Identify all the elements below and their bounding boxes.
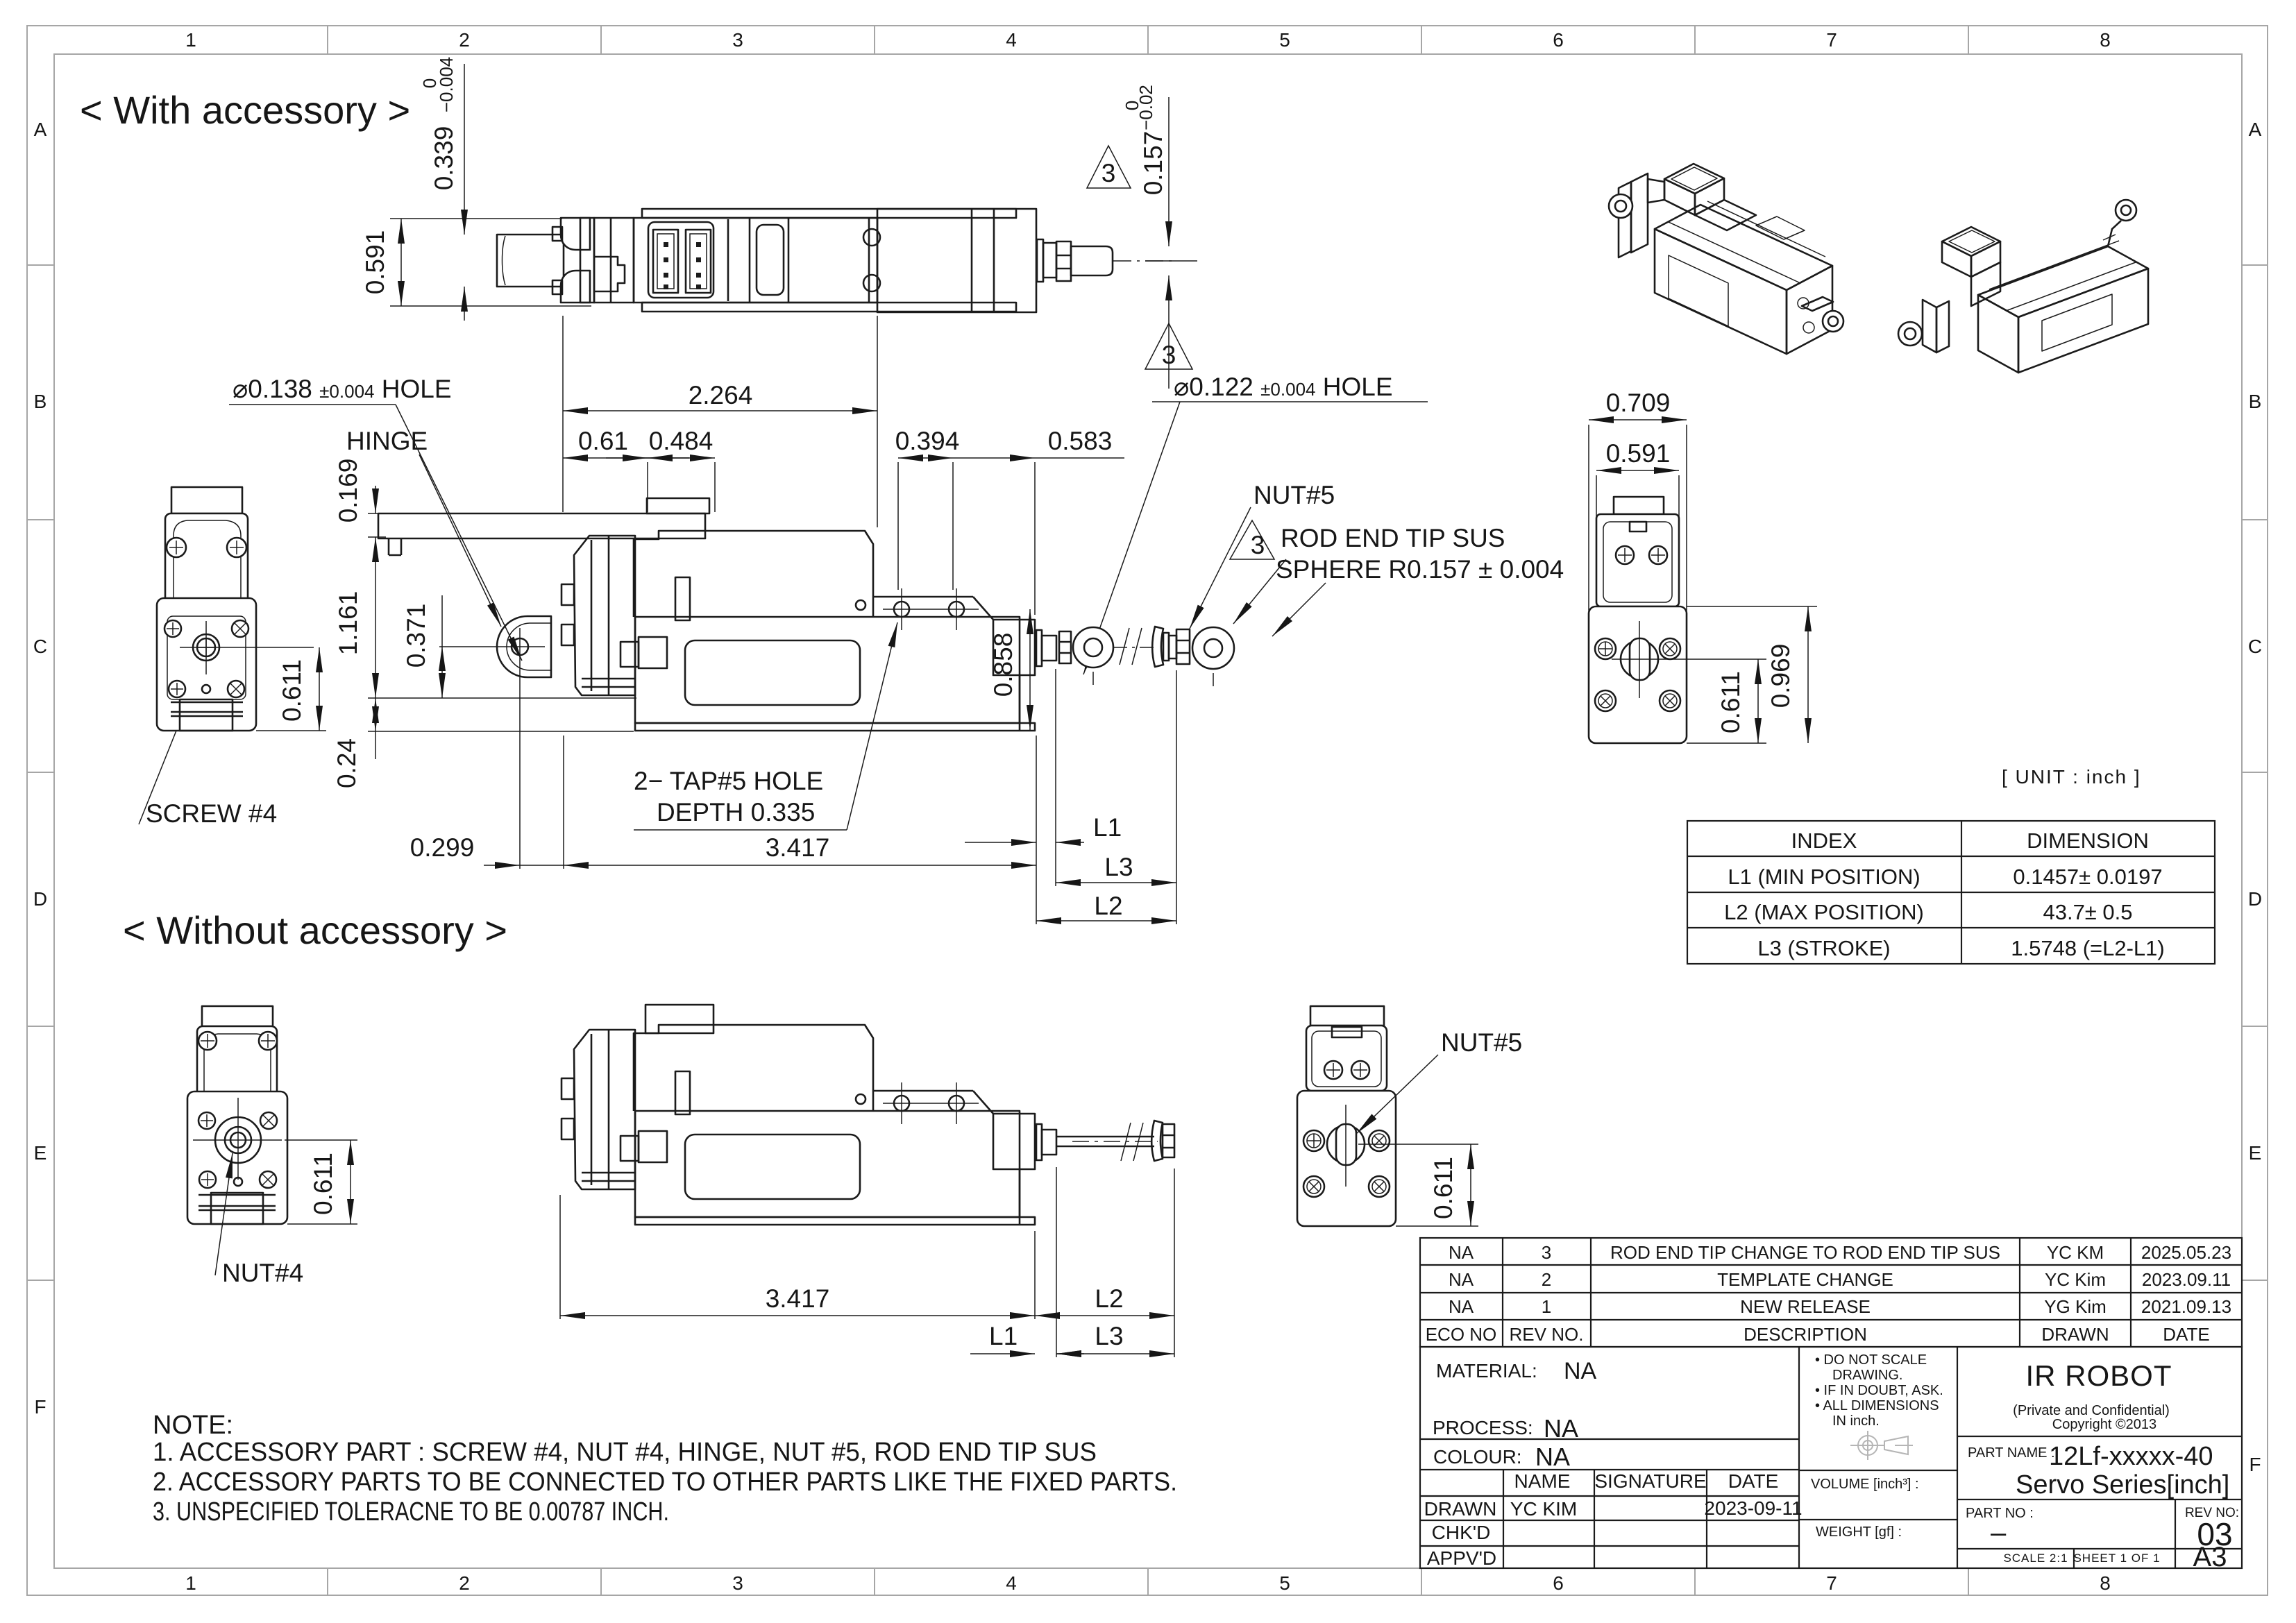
svg-text:DRAWING.: DRAWING. xyxy=(1832,1368,1902,1383)
svg-text:E: E xyxy=(34,1142,47,1164)
svg-text:0.611: 0.611 xyxy=(1716,671,1745,733)
svg-text:0.611: 0.611 xyxy=(278,659,306,722)
svg-text:DIMENSION: DIMENSION xyxy=(2027,829,2149,853)
svg-text:DEPTH 0.335: DEPTH 0.335 xyxy=(657,798,815,826)
svg-text:IR ROBOT: IR ROBOT xyxy=(2025,1359,2172,1392)
svg-text:• DO NOT SCALE: • DO NOT SCALE xyxy=(1815,1352,1927,1368)
svg-text:NA: NA xyxy=(1449,1269,1474,1290)
svg-text:COLOUR:: COLOUR: xyxy=(1433,1446,1522,1468)
svg-text:ROD END TIP CHANGE TO ROD END: ROD END TIP CHANGE TO ROD END TIP SUS xyxy=(1610,1242,2000,1263)
svg-text:3.417: 3.417 xyxy=(766,1284,830,1313)
svg-text:C: C xyxy=(2248,636,2262,657)
svg-text:ECO NO: ECO NO xyxy=(1426,1324,1497,1345)
svg-text:3. UNSPECIFIED TOLERACNE TO BE: 3. UNSPECIFIED TOLERACNE TO BE 0.00787 I… xyxy=(153,1497,669,1527)
svg-text:NA: NA xyxy=(1449,1242,1474,1263)
svg-text:5: 5 xyxy=(1279,29,1290,51)
svg-text:F: F xyxy=(2249,1454,2261,1475)
svg-text:D: D xyxy=(2248,888,2262,910)
svg-text:8: 8 xyxy=(2100,29,2111,51)
svg-text:A3: A3 xyxy=(2193,1542,2227,1572)
svg-text:3: 3 xyxy=(1542,1242,1551,1263)
svg-text:DRAWN: DRAWN xyxy=(2041,1324,2109,1345)
svg-text:Servo Series[inch]: Servo Series[inch] xyxy=(2016,1470,2229,1499)
svg-text:0.339: 0.339 xyxy=(430,126,458,191)
svg-text:2. ACCESSORY PARTS TO BE CONNE: 2. ACCESSORY PARTS TO BE CONNECTED TO OT… xyxy=(153,1468,1177,1497)
svg-text:D: D xyxy=(33,888,47,910)
svg-text:7: 7 xyxy=(1826,29,1837,51)
svg-text:E: E xyxy=(2249,1142,2262,1164)
svg-text:PART NAME :: PART NAME : xyxy=(1968,1445,2055,1461)
svg-text:NA: NA xyxy=(1564,1358,1597,1384)
svg-text:1: 1 xyxy=(185,29,196,51)
svg-text:–: – xyxy=(1991,1518,2007,1548)
svg-text:NA: NA xyxy=(1544,1414,1578,1443)
svg-text:5: 5 xyxy=(1279,1572,1290,1594)
svg-text:0.1457± 0.0197: 0.1457± 0.0197 xyxy=(2013,865,2162,889)
svg-text:2: 2 xyxy=(1542,1269,1551,1290)
svg-text:3: 3 xyxy=(1101,159,1116,187)
svg-text:ROD END TIP SUS: ROD END TIP SUS xyxy=(1281,524,1505,552)
svg-text:2023-09-11: 2023-09-11 xyxy=(1704,1497,1802,1519)
svg-text:2: 2 xyxy=(459,1572,470,1594)
svg-text:−0.004: −0.004 xyxy=(436,57,457,112)
svg-text:0.169: 0.169 xyxy=(334,459,362,523)
svg-text:1.161: 1.161 xyxy=(334,591,362,656)
svg-text:L2: L2 xyxy=(1095,1284,1123,1313)
svg-text:0.858: 0.858 xyxy=(989,633,1018,697)
svg-text:IN inch.: IN inch. xyxy=(1832,1413,1880,1429)
svg-text:NEW RELEASE: NEW RELEASE xyxy=(1740,1296,1871,1317)
svg-text:1: 1 xyxy=(185,1572,196,1594)
svg-text:A: A xyxy=(2249,119,2262,140)
svg-text:0.299: 0.299 xyxy=(410,833,475,862)
svg-text:DATE: DATE xyxy=(1728,1470,1779,1492)
svg-text:2023.09.11: 2023.09.11 xyxy=(2142,1269,2231,1290)
svg-text:MATERIAL:: MATERIAL: xyxy=(1436,1360,1537,1382)
svg-text:0.394: 0.394 xyxy=(895,427,960,455)
svg-text:1: 1 xyxy=(1542,1296,1551,1317)
svg-text:2− TAP#5 HOLE: 2− TAP#5 HOLE xyxy=(634,767,823,795)
svg-text:NA: NA xyxy=(1535,1443,1570,1471)
svg-text:< With accessory >: < With accessory > xyxy=(80,88,410,132)
svg-text:L3 (STROKE): L3 (STROKE) xyxy=(1757,936,1890,960)
svg-text:3: 3 xyxy=(1162,341,1176,369)
svg-text:(Private and Confidential): (Private and Confidential) xyxy=(2013,1403,2170,1418)
svg-text:0.591: 0.591 xyxy=(1606,439,1671,468)
svg-text:0.24: 0.24 xyxy=(332,738,361,788)
svg-text:L1 (MIN POSITION): L1 (MIN POSITION) xyxy=(1728,865,1920,889)
svg-text:HINGE: HINGE xyxy=(346,427,428,455)
svg-text:CHK'D: CHK'D xyxy=(1432,1522,1491,1543)
svg-text:0.61: 0.61 xyxy=(578,427,628,455)
svg-text:NUT#4: NUT#4 xyxy=(222,1259,303,1287)
svg-text:L1: L1 xyxy=(1093,813,1122,842)
svg-text:L2: L2 xyxy=(1094,892,1122,920)
svg-text:8: 8 xyxy=(2100,1572,2111,1594)
svg-text:3: 3 xyxy=(732,29,743,51)
svg-text:DRAWN: DRAWN xyxy=(1424,1498,1497,1520)
svg-text:0.969: 0.969 xyxy=(1766,644,1795,708)
svg-text:4: 4 xyxy=(1006,29,1017,51)
svg-text:• IF IN DOUBT, ASK.: • IF IN DOUBT, ASK. xyxy=(1815,1383,1943,1398)
svg-text:< Without accessory >: < Without accessory > xyxy=(123,908,507,952)
svg-text:3: 3 xyxy=(1251,531,1265,559)
svg-text:SIGNATURE: SIGNATURE xyxy=(1594,1470,1706,1492)
svg-text:0.583: 0.583 xyxy=(1048,427,1113,455)
svg-text:DESCRIPTION: DESCRIPTION xyxy=(1744,1324,1867,1345)
svg-text:WEIGHT [gf] :: WEIGHT [gf] : xyxy=(1816,1524,1902,1540)
svg-text:SCREW #4: SCREW #4 xyxy=(146,799,277,828)
svg-text:B: B xyxy=(2249,391,2262,412)
svg-text:0.371: 0.371 xyxy=(402,604,430,668)
svg-text:YC KIM: YC KIM xyxy=(1510,1498,1577,1520)
svg-text:SHEET 1 OF 1: SHEET 1 OF 1 xyxy=(2073,1552,2160,1565)
svg-text:−0.02: −0.02 xyxy=(1136,85,1156,130)
svg-text:• ALL DIMENSIONS: • ALL DIMENSIONS xyxy=(1815,1398,1939,1413)
svg-text:4: 4 xyxy=(1006,1572,1017,1594)
svg-text:[ UNIT : inch ]: [ UNIT : inch ] xyxy=(2002,766,2141,788)
svg-text:7: 7 xyxy=(1826,1572,1837,1594)
svg-text:APPV'D: APPV'D xyxy=(1427,1547,1496,1569)
svg-text:YC Kim: YC Kim xyxy=(2045,1269,2106,1290)
svg-text:2025.05.23: 2025.05.23 xyxy=(2141,1242,2231,1263)
svg-text:DATE: DATE xyxy=(2163,1324,2209,1345)
svg-text:NUT#5: NUT#5 xyxy=(1253,481,1335,509)
svg-text:SCALE 2:1: SCALE 2:1 xyxy=(2003,1552,2068,1565)
svg-text:0.484: 0.484 xyxy=(649,427,714,455)
svg-text:NUT#5: NUT#5 xyxy=(1441,1028,1522,1057)
svg-text:A: A xyxy=(34,119,47,140)
svg-text:1. ACCESSORY PART : SCREW #4,: 1. ACCESSORY PART : SCREW #4, NUT #4, HI… xyxy=(153,1438,1097,1467)
svg-text:NAME: NAME xyxy=(1514,1470,1571,1492)
svg-text:VOLUME [inch³] :: VOLUME [inch³] : xyxy=(1811,1477,1919,1492)
svg-text:2: 2 xyxy=(459,29,470,51)
svg-text:INDEX: INDEX xyxy=(1791,829,1857,853)
svg-text:43.7± 0.5: 43.7± 0.5 xyxy=(2043,900,2132,924)
svg-text:0.709: 0.709 xyxy=(1606,389,1671,417)
svg-text:2021.09.13: 2021.09.13 xyxy=(2141,1296,2231,1317)
svg-text:F: F xyxy=(34,1396,46,1418)
svg-text:0.611: 0.611 xyxy=(309,1153,337,1215)
svg-text:PROCESS:: PROCESS: xyxy=(1433,1417,1533,1438)
svg-text:L2 (MAX POSITION): L2 (MAX POSITION) xyxy=(1724,900,1924,924)
svg-text:3: 3 xyxy=(732,1572,743,1594)
svg-text:B: B xyxy=(34,391,47,412)
svg-text:TEMPLATE CHANGE: TEMPLATE CHANGE xyxy=(1717,1269,1893,1290)
svg-text:6: 6 xyxy=(1553,29,1564,51)
svg-text:1.5748 (=L2-L1): 1.5748 (=L2-L1) xyxy=(2011,936,2164,960)
svg-text:6: 6 xyxy=(1553,1572,1564,1594)
svg-text:L3: L3 xyxy=(1104,853,1133,881)
svg-text:0.157: 0.157 xyxy=(1139,131,1167,196)
svg-text:YC KM: YC KM xyxy=(2047,1242,2104,1263)
svg-text:3.417: 3.417 xyxy=(766,833,830,862)
svg-text:REV NO.: REV NO. xyxy=(1510,1324,1584,1345)
svg-text:YG Kim: YG Kim xyxy=(2044,1296,2107,1317)
svg-text:Copyright ©2013: Copyright ©2013 xyxy=(2052,1417,2156,1432)
svg-text:NOTE:: NOTE: xyxy=(153,1411,233,1440)
svg-text:12Lf-xxxxx-40: 12Lf-xxxxx-40 xyxy=(2049,1442,2213,1471)
svg-text:SPHERE R0.157 ± 0.004: SPHERE R0.157 ± 0.004 xyxy=(1276,555,1564,584)
svg-text:L3: L3 xyxy=(1095,1322,1123,1350)
svg-text:C: C xyxy=(33,636,47,657)
svg-text:L1: L1 xyxy=(989,1322,1018,1350)
svg-text:2.264: 2.264 xyxy=(689,381,753,409)
svg-text:0.591: 0.591 xyxy=(361,230,389,295)
svg-text:0.611: 0.611 xyxy=(1429,1157,1458,1219)
svg-text:NA: NA xyxy=(1449,1296,1474,1317)
